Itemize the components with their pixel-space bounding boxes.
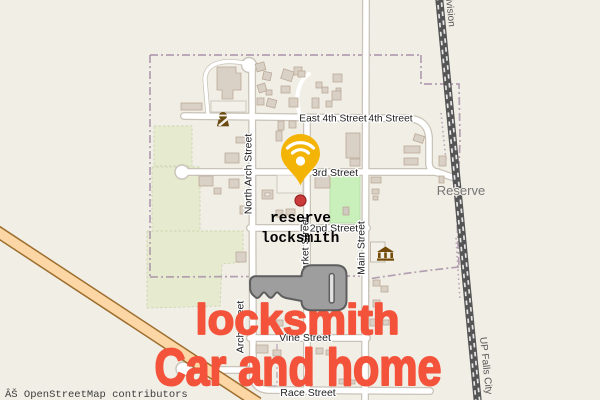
svg-text:North Arch Street: North Arch Street	[243, 134, 255, 215]
svg-text:locksmith: locksmith	[261, 231, 339, 247]
svg-text:reserve: reserve	[270, 211, 331, 227]
svg-text:Car and home: Car and home	[155, 339, 442, 397]
svg-text:East 4th Street: East 4th Street	[299, 114, 367, 125]
svg-text:Main Street: Main Street	[356, 221, 368, 275]
svg-text:locksmith: locksmith	[196, 296, 400, 344]
svg-text:4th Street: 4th Street	[368, 114, 412, 125]
svg-text:3rd Street: 3rd Street	[312, 167, 358, 179]
svg-text:Reserve: Reserve	[437, 183, 485, 198]
svg-text:ÂŠ OpenStreetMap contributors: ÂŠ OpenStreetMap contributors	[5, 387, 188, 400]
